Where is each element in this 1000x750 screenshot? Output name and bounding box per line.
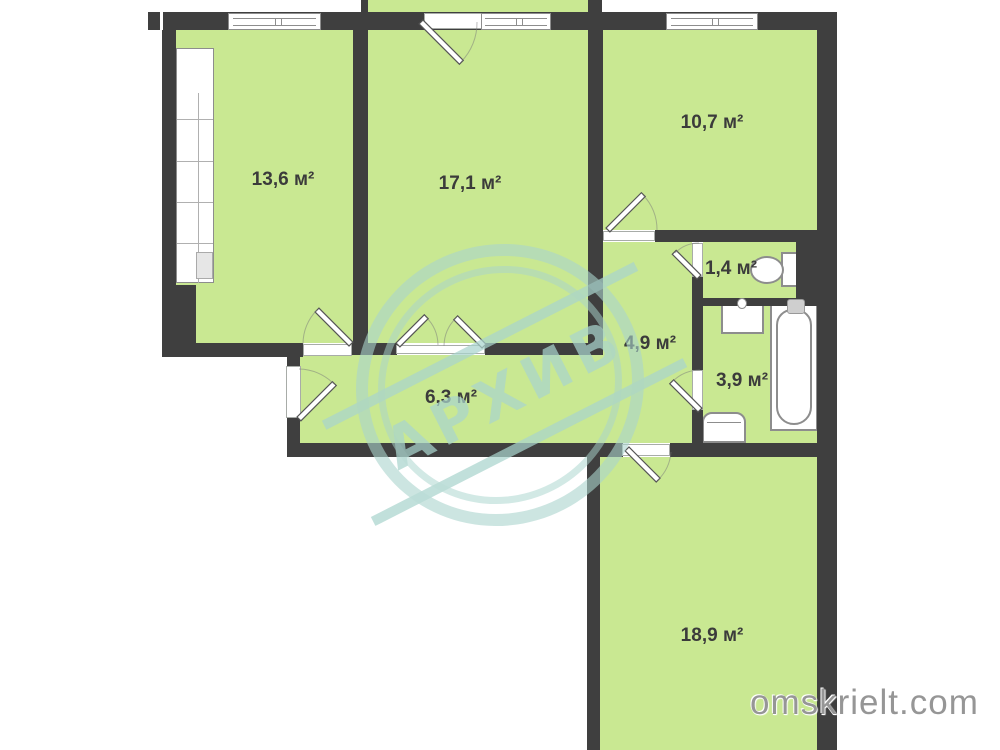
- door-swing-arc: [461, 22, 477, 62]
- label-corridor-area: 6,3 м²: [425, 387, 477, 409]
- site-watermark: omskrielt.com: [750, 683, 979, 723]
- label-kitchen-area: 13,6 м²: [252, 169, 315, 191]
- label-hallway-area: 4,9 м²: [624, 333, 676, 355]
- door-swing-arc: [675, 243, 699, 253]
- doors-layer: [0, 0, 1000, 750]
- entrance-door-leaf: [297, 382, 336, 421]
- bathroom-door-leaf: [670, 380, 702, 412]
- label-living-area: 17,1 м²: [439, 173, 502, 195]
- door-swing-arc: [672, 370, 700, 382]
- door-swing-arc: [444, 318, 456, 346]
- wc-door-leaf: [672, 250, 701, 279]
- living-door-leaf-right: [454, 316, 486, 348]
- door-swing-arc: [426, 317, 438, 345]
- kitchen-door-leaf: [315, 308, 353, 346]
- big-room-door-leaf: [625, 447, 660, 482]
- living-door-leaf-left: [396, 315, 428, 347]
- label-wc-area: 1,4 м²: [705, 258, 757, 280]
- door-swing-arc: [658, 452, 671, 480]
- label-bedroom-area: 10,7 м²: [681, 112, 744, 134]
- door-swing-arc: [303, 310, 317, 344]
- label-big-room-area: 18,9 м²: [681, 625, 744, 647]
- door-swing-arc: [643, 195, 657, 230]
- bedroom-door-leaf: [606, 193, 645, 232]
- floor-plan: 13,6 м² 17,1 м² 10,7 м² 1,4 м² 4,9 м² 3,…: [0, 0, 1000, 750]
- label-bathroom-area: 3,9 м²: [716, 370, 768, 392]
- balcony-door-leaf: [419, 20, 463, 64]
- door-swing-arc: [299, 369, 334, 384]
